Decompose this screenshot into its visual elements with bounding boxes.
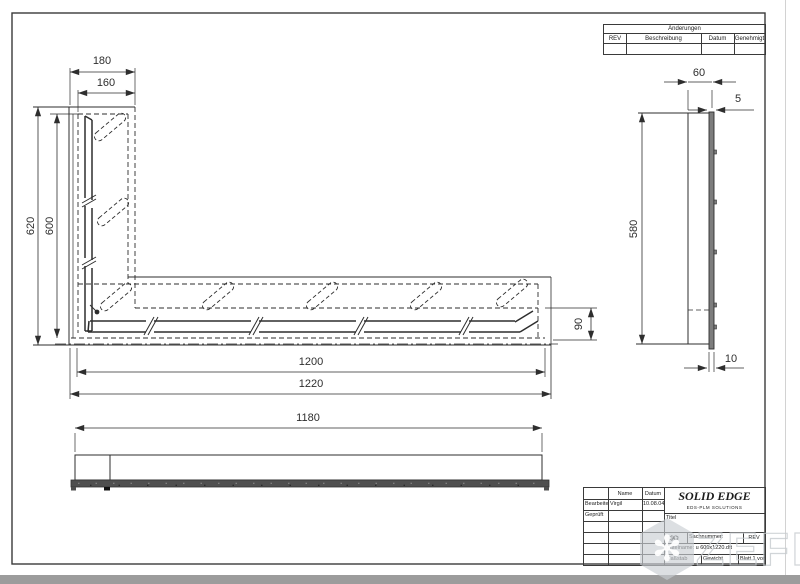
rail-clip [104, 487, 110, 491]
dim-1200: 1200 [77, 348, 545, 377]
horizontal-track-profile [88, 311, 538, 335]
hidden-panel-outline [71, 107, 545, 338]
dim-1180: 1180 [75, 412, 542, 452]
slot-holes [93, 111, 530, 312]
weight-label: Gewicht [703, 556, 736, 564]
svg-text:580: 580 [628, 220, 640, 238]
top-view [33, 107, 558, 399]
svg-text:10: 10 [725, 353, 737, 365]
svg-text:180: 180 [93, 55, 111, 67]
drawn-date: 10.08.04 [643, 501, 664, 510]
svg-text:5: 5 [735, 93, 741, 105]
title-block: Name Datum Bearbeitet Virgil 10.08.04 Ge… [583, 487, 766, 566]
svg-text:60: 60 [693, 67, 705, 79]
drawing-sheet-page: { "revision_table": { "title": "Änderung… [0, 0, 800, 584]
revision-col-date: Datum [701, 34, 734, 43]
dim-620: 620 [25, 107, 38, 345]
side-view: 60 5 580 10 [628, 67, 754, 372]
svg-text:1200: 1200 [299, 356, 323, 368]
solid-edge-logo-subtitle: EDS-PLM SOLUTIONS [664, 503, 765, 511]
name-column-header: Name [608, 488, 642, 499]
revision-col-description: Beschreibung [626, 34, 701, 43]
vertical-stud-profile [82, 116, 96, 331]
revision-table-title: Änderungen [604, 25, 765, 33]
dim-60: 60 [664, 67, 736, 110]
scale-label: Maßstab [666, 556, 699, 564]
page-bottom-shadow [0, 575, 800, 584]
drawn-by-label: Bearbeitet [585, 501, 608, 510]
revision-col-rev: REV [604, 34, 626, 43]
dim-90: 90 [545, 308, 597, 340]
dim-580: 580 [628, 113, 642, 344]
rev-label: REV [743, 534, 765, 542]
sheet-size: A2 [672, 536, 686, 543]
dim-10: 10 [684, 352, 744, 372]
panel-edge-profile [709, 112, 714, 349]
sheet-number-label: Blatt 1 von 1 [740, 556, 765, 564]
filename-field: Dateiname: u 600x1220.dft [666, 545, 764, 553]
dim-5: 5 [688, 93, 754, 110]
svg-text:620: 620 [25, 217, 37, 235]
revision-col-approved: Genehmigt [734, 34, 765, 43]
drawn-by-name: Virgil [610, 501, 642, 510]
revision-table: Änderungen REV Beschreibung Datum Genehm… [603, 24, 766, 55]
metal-rail [71, 480, 549, 487]
document-number-label: Sachnummer: [689, 534, 741, 542]
title-label: Titel [666, 515, 726, 523]
date-column-header: Datum [642, 488, 664, 499]
svg-text:1180: 1180 [296, 412, 320, 424]
svg-text:90: 90 [573, 318, 585, 330]
page-right-edge [785, 0, 786, 575]
svg-text:600: 600 [44, 217, 56, 235]
svg-text:1220: 1220 [299, 378, 323, 390]
solid-edge-logo: SOLID EDGE [664, 490, 765, 503]
checked-by-label: Geprüft [585, 512, 608, 521]
svg-text:160: 160 [97, 77, 115, 89]
front-view: 1180 [71, 412, 549, 491]
